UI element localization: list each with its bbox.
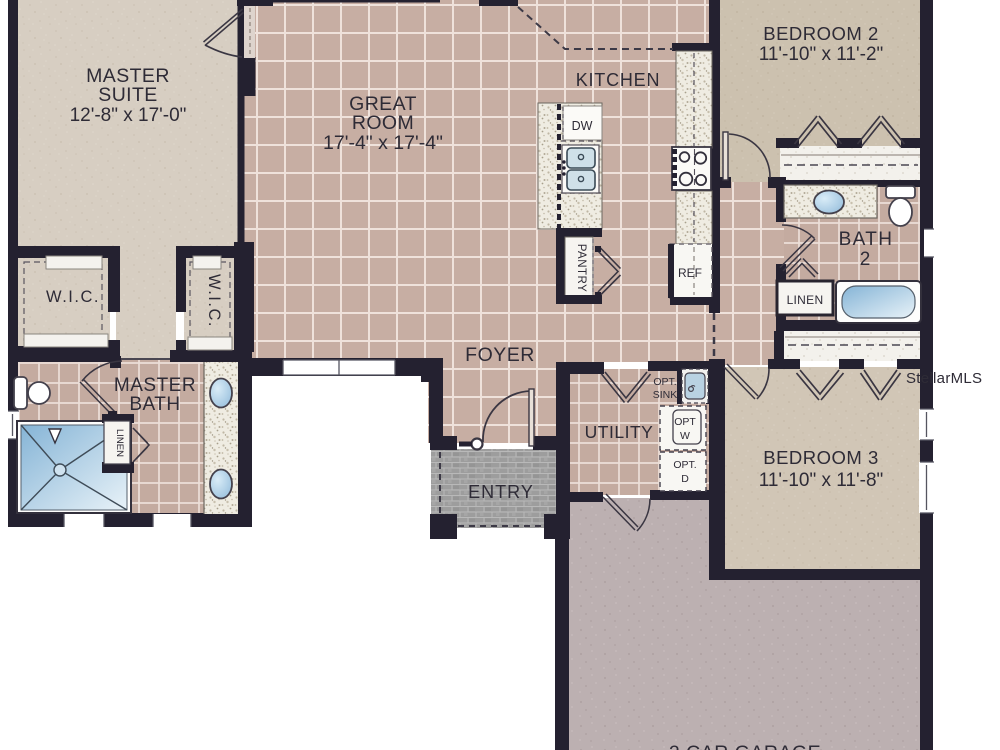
svg-text:W: W — [680, 430, 690, 442]
svg-text:REF: REF — [678, 266, 702, 280]
svg-text:PANTRY: PANTRY — [575, 244, 587, 293]
svg-text:BEDROOM 3: BEDROOM 3 — [763, 447, 879, 468]
svg-text:KITCHEN: KITCHEN — [576, 70, 661, 90]
svg-text:2 CAR GARAGE: 2 CAR GARAGE — [669, 742, 821, 750]
svg-text:FOYER: FOYER — [465, 344, 535, 366]
svg-text:BATH: BATH — [839, 229, 894, 250]
svg-text:SUITE: SUITE — [98, 84, 157, 106]
svg-text:12'-8" x 17'-0": 12'-8" x 17'-0" — [70, 105, 187, 126]
svg-text:W.I.C.: W.I.C. — [205, 274, 223, 328]
svg-text:11'-10" x 11'-2": 11'-10" x 11'-2" — [759, 44, 884, 65]
svg-text:17'-4" x 17'-4": 17'-4" x 17'-4" — [323, 132, 443, 154]
svg-text:StellarMLS: StellarMLS — [906, 370, 982, 387]
svg-text:OPT: OPT — [674, 416, 696, 428]
svg-text:MASTER: MASTER — [114, 375, 196, 396]
svg-text:OPT.: OPT. — [673, 459, 696, 471]
svg-text:ENTRY: ENTRY — [468, 482, 534, 502]
svg-text:UTILITY: UTILITY — [585, 422, 654, 442]
svg-text:W.I.C.: W.I.C. — [46, 288, 100, 306]
svg-text:SINK: SINK — [653, 389, 678, 401]
svg-text:LINEN: LINEN — [787, 293, 824, 307]
svg-text:OPT.: OPT. — [653, 376, 676, 388]
svg-text:BATH: BATH — [129, 394, 180, 415]
svg-text:2: 2 — [860, 249, 871, 270]
svg-text:11'-10" x 11'-8": 11'-10" x 11'-8" — [759, 470, 884, 491]
svg-text:ROOM: ROOM — [352, 112, 414, 134]
svg-text:BEDROOM 2: BEDROOM 2 — [763, 23, 879, 44]
svg-text:DW: DW — [572, 119, 593, 133]
svg-text:D: D — [681, 473, 689, 485]
svg-text:LINEN: LINEN — [114, 429, 125, 457]
